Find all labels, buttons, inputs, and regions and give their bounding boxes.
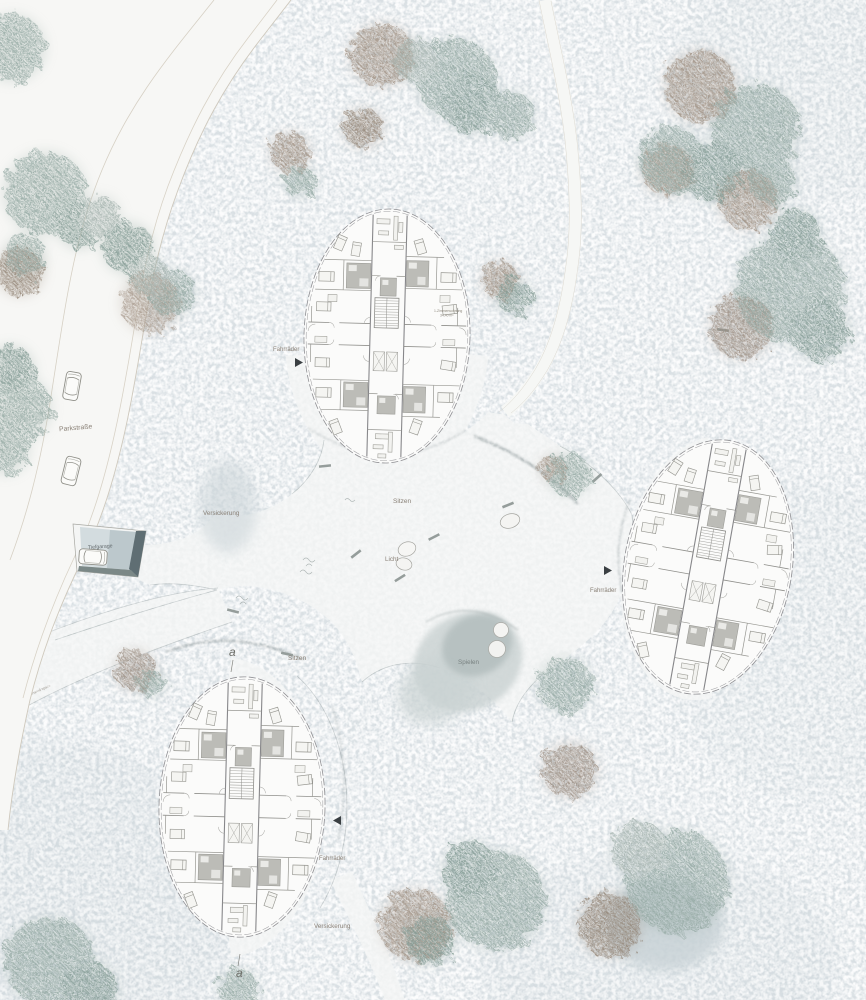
svg-text:Licht: Licht xyxy=(385,556,399,563)
svg-text:a: a xyxy=(229,645,236,659)
svg-text:Versickerung: Versickerung xyxy=(203,510,240,517)
svg-text:Fahrräder: Fahrräder xyxy=(319,856,345,862)
svg-text:Fahrräder: Fahrräder xyxy=(590,588,616,594)
svg-text:34,40 m²: 34,40 m² xyxy=(440,314,454,318)
svg-text:Sitzen: Sitzen xyxy=(288,655,306,662)
svg-text:a: a xyxy=(236,966,243,980)
svg-text:Versickerung: Versickerung xyxy=(314,923,351,930)
svg-text:1-Zimmerwohnung: 1-Zimmerwohnung xyxy=(434,309,462,313)
svg-text:Fahrräder: Fahrräder xyxy=(273,347,299,353)
svg-text:Spielen: Spielen xyxy=(458,659,480,666)
svg-text:Sitzen: Sitzen xyxy=(393,498,411,505)
